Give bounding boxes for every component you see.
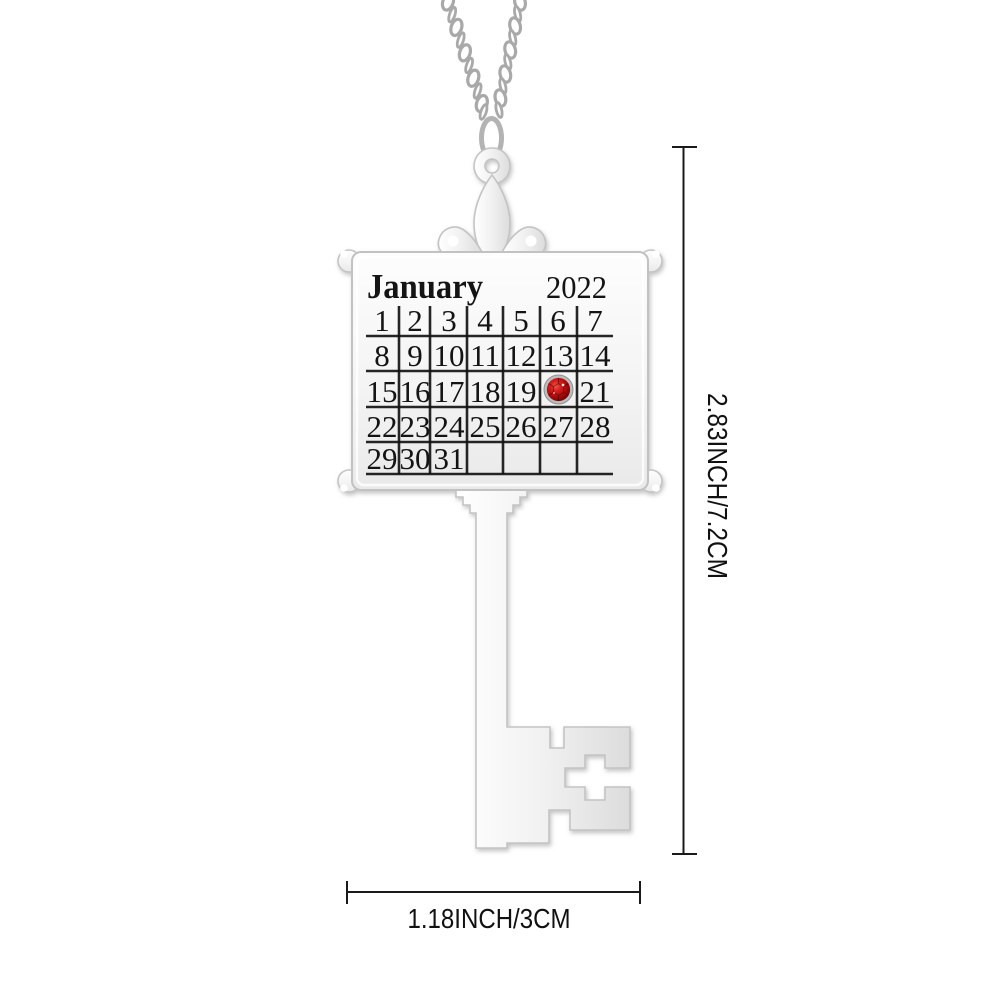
width-dimension-label: 1.18INCH/3CM bbox=[408, 903, 571, 934]
height-dimension-label: 2.83INCH/7.2CM bbox=[702, 393, 733, 579]
gem-sparkle bbox=[553, 392, 555, 394]
key-shaft-and-bit bbox=[456, 490, 630, 848]
calendar-day-cell: 27 bbox=[543, 409, 574, 444]
calendar-day-cell: 6 bbox=[550, 303, 566, 338]
pendant-illustration: January 2022 1 2 3 4 5 6 7 8 9 10 11 12 … bbox=[0, 0, 1000, 1000]
calendar-day-cell: 1 bbox=[374, 303, 390, 338]
calendar-day-cell: 22 bbox=[367, 409, 398, 444]
calendar-day-cell: 11 bbox=[470, 338, 500, 373]
calendar-day-cell: 31 bbox=[434, 441, 465, 476]
fleur-de-lis-bow bbox=[438, 175, 545, 258]
calendar-day-cell: 17 bbox=[434, 374, 465, 409]
calendar-day-cell: 28 bbox=[580, 409, 611, 444]
calendar-day-cell: 5 bbox=[513, 303, 529, 338]
calendar-day-cell: 8 bbox=[374, 338, 390, 373]
width-dimension: 1.18INCH/3CM bbox=[347, 881, 640, 934]
chain-right-strand bbox=[493, 0, 526, 118]
birthstone-gem bbox=[544, 375, 573, 404]
calendar-day-cell: 14 bbox=[580, 338, 612, 373]
calendar-day-cell: 2 bbox=[407, 303, 423, 338]
calendar-day-cell: 4 bbox=[477, 303, 493, 338]
calendar-day-cell: 25 bbox=[470, 409, 501, 444]
calendar-day-cell: 15 bbox=[367, 374, 398, 409]
gem-sparkle bbox=[562, 384, 565, 387]
calendar-day-cell: 10 bbox=[434, 338, 465, 373]
calendar-month: January bbox=[367, 267, 483, 306]
calendar-day-cell: 7 bbox=[587, 303, 603, 338]
calendar-day-cell: 12 bbox=[506, 338, 537, 373]
pendant-key bbox=[338, 148, 662, 848]
calendar-day-cell: 3 bbox=[441, 303, 457, 338]
calendar-day-cell: 26 bbox=[506, 409, 537, 444]
product-photo: January 2022 1 2 3 4 5 6 7 8 9 10 11 12 … bbox=[0, 0, 1000, 1000]
calendar-day-cell: 18 bbox=[470, 374, 501, 409]
height-dimension: 2.83INCH/7.2CM bbox=[672, 147, 733, 854]
calendar-day-cell: 16 bbox=[400, 374, 431, 409]
calendar-day-cell: 21 bbox=[580, 374, 611, 409]
calendar-day-cell: 13 bbox=[543, 338, 574, 373]
calendar-day-cell: 9 bbox=[407, 338, 423, 373]
calendar-day-cell: 29 bbox=[367, 441, 398, 476]
necklace-chain bbox=[440, 0, 526, 157]
calendar-day-cell: 19 bbox=[506, 374, 537, 409]
calendar-day-cell: 23 bbox=[400, 409, 431, 444]
calendar-day-cell: 30 bbox=[400, 441, 431, 476]
calendar-year: 2022 bbox=[546, 269, 607, 305]
chain-left-strand bbox=[440, 0, 489, 120]
calendar-day-cell: 24 bbox=[434, 409, 466, 444]
